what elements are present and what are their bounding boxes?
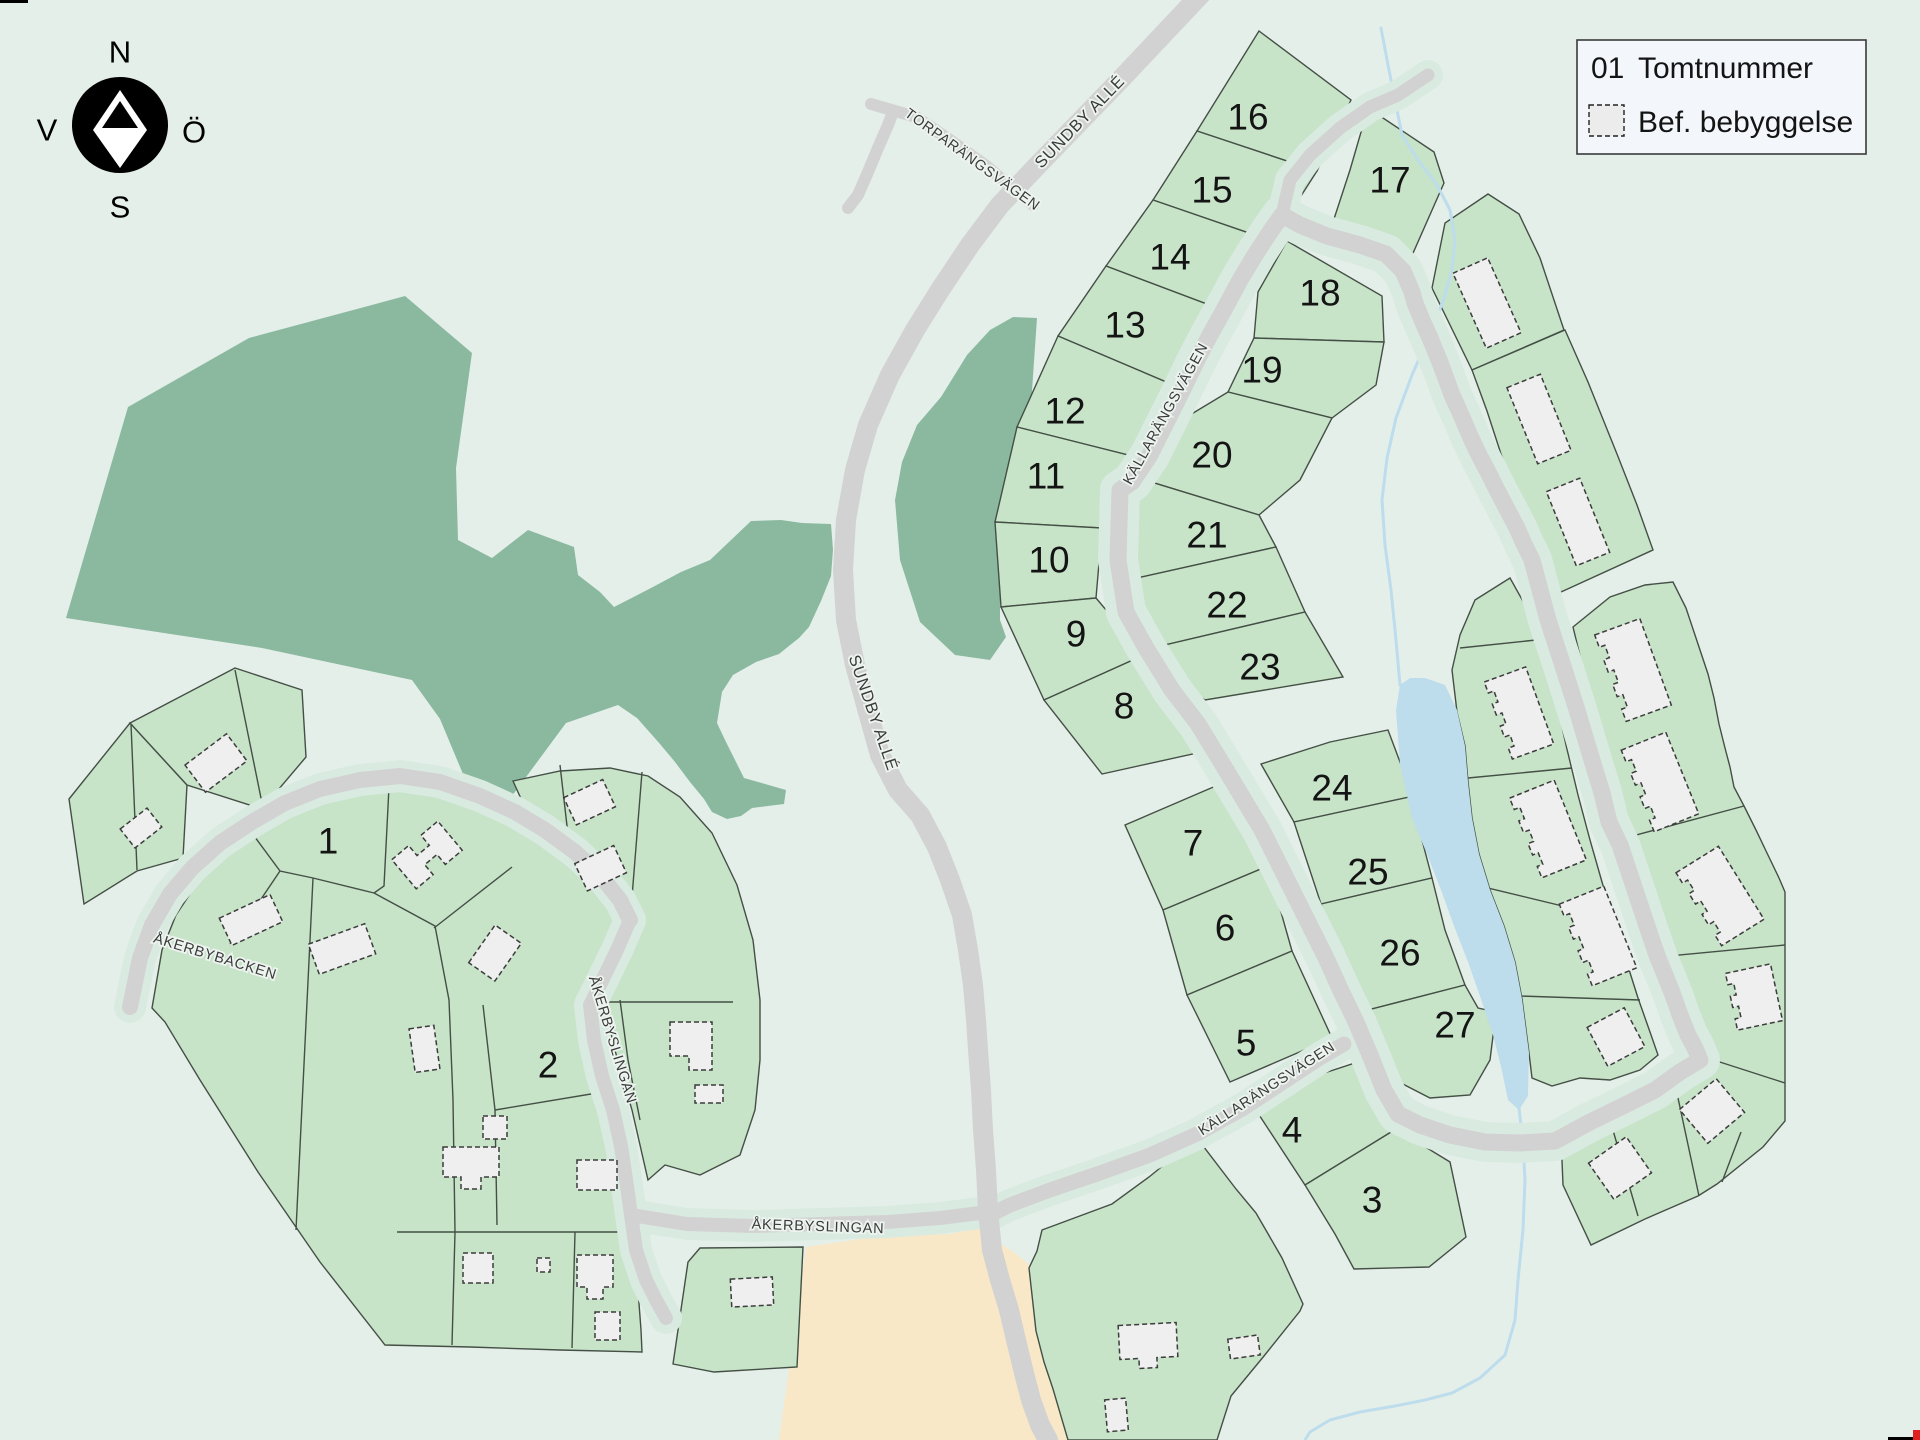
svg-text:6: 6 [1215, 908, 1236, 949]
svg-text:12: 12 [1044, 391, 1085, 432]
svg-text:18: 18 [1299, 273, 1340, 314]
svg-text:9: 9 [1066, 614, 1087, 655]
svg-text:Ö: Ö [182, 115, 206, 150]
svg-text:4: 4 [1282, 1110, 1303, 1151]
svg-text:21: 21 [1186, 515, 1227, 556]
svg-text:3: 3 [1362, 1180, 1383, 1221]
svg-text:22: 22 [1206, 585, 1247, 626]
svg-text:14: 14 [1149, 237, 1190, 278]
svg-text:15: 15 [1191, 170, 1232, 211]
svg-text:7: 7 [1183, 823, 1204, 864]
svg-text:Bef. bebyggelse: Bef. bebyggelse [1638, 106, 1853, 139]
svg-text:24: 24 [1311, 768, 1352, 809]
svg-text:N: N [109, 35, 131, 70]
svg-text:1: 1 [318, 821, 339, 862]
svg-text:Tomtnummer: Tomtnummer [1638, 52, 1813, 85]
svg-text:27: 27 [1434, 1005, 1475, 1046]
svg-text:26: 26 [1379, 933, 1420, 974]
svg-text:10: 10 [1028, 540, 1069, 581]
svg-text:01: 01 [1591, 52, 1624, 85]
svg-text:11: 11 [1027, 456, 1065, 497]
svg-text:25: 25 [1347, 852, 1388, 893]
svg-text:17: 17 [1369, 160, 1410, 201]
svg-text:23: 23 [1239, 647, 1280, 688]
svg-text:8: 8 [1114, 686, 1135, 727]
svg-text:S: S [110, 190, 131, 225]
svg-text:5: 5 [1236, 1023, 1257, 1064]
svg-text:13: 13 [1104, 305, 1145, 346]
svg-text:19: 19 [1241, 350, 1282, 391]
svg-text:20: 20 [1191, 435, 1232, 476]
svg-text:16: 16 [1227, 97, 1268, 138]
svg-text:V: V [37, 113, 58, 148]
svg-text:2: 2 [538, 1045, 559, 1086]
